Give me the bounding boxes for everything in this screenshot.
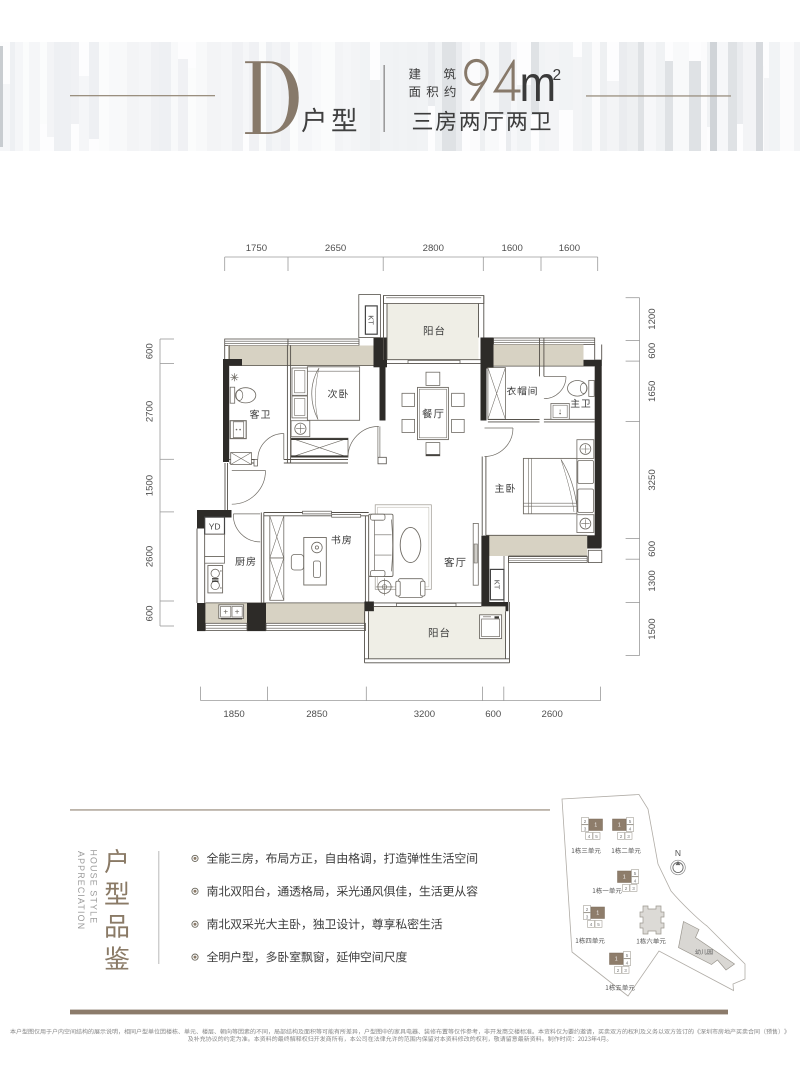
svg-text:600: 600 xyxy=(647,343,658,359)
svg-text:1: 1 xyxy=(615,957,618,963)
svg-text:1300: 1300 xyxy=(647,570,658,591)
svg-text:1: 1 xyxy=(594,823,597,829)
svg-text:2: 2 xyxy=(586,907,589,912)
svg-text:1850: 1850 xyxy=(223,709,244,720)
svg-text:YD: YD xyxy=(209,522,221,532)
svg-text:3250: 3250 xyxy=(647,469,658,490)
svg-text:2: 2 xyxy=(620,834,623,839)
svg-text:5: 5 xyxy=(634,871,637,876)
svg-text:4: 4 xyxy=(629,826,632,831)
svg-text:HOUSE STYLE: HOUSE STYLE xyxy=(89,850,99,925)
svg-text:600: 600 xyxy=(145,343,156,359)
svg-text:m: m xyxy=(520,55,557,111)
svg-text:3: 3 xyxy=(624,968,627,973)
svg-text:1: 1 xyxy=(623,875,626,881)
svg-text:4: 4 xyxy=(626,960,629,965)
svg-text:2: 2 xyxy=(625,886,628,891)
svg-text:2: 2 xyxy=(584,819,587,824)
svg-text:2650: 2650 xyxy=(325,243,346,254)
svg-text:2850: 2850 xyxy=(306,709,327,720)
svg-text:600: 600 xyxy=(485,709,501,720)
svg-text:5: 5 xyxy=(595,834,598,839)
svg-text:5: 5 xyxy=(626,953,629,958)
svg-text:3: 3 xyxy=(584,826,587,831)
svg-text:2800: 2800 xyxy=(423,243,444,254)
svg-text:1200: 1200 xyxy=(647,308,658,329)
svg-text:1650: 1650 xyxy=(647,381,658,402)
svg-text:5: 5 xyxy=(597,922,600,927)
svg-text:1750: 1750 xyxy=(246,243,267,254)
svg-text:2: 2 xyxy=(617,968,620,973)
svg-text:1: 1 xyxy=(596,911,599,917)
svg-text:2600: 2600 xyxy=(542,709,563,720)
svg-text:5: 5 xyxy=(629,819,632,824)
svg-text:2: 2 xyxy=(553,67,562,84)
svg-text:APPRECIATION: APPRECIATION xyxy=(76,851,86,930)
svg-text:600: 600 xyxy=(145,605,156,621)
svg-text:1600: 1600 xyxy=(502,243,523,254)
svg-text:4: 4 xyxy=(590,922,593,927)
svg-text:1600: 1600 xyxy=(559,243,580,254)
svg-text:3: 3 xyxy=(632,886,635,891)
svg-text:3: 3 xyxy=(627,834,630,839)
svg-text:2700: 2700 xyxy=(145,401,156,422)
svg-text:3: 3 xyxy=(586,914,589,919)
svg-text:4: 4 xyxy=(634,878,637,883)
svg-text:600: 600 xyxy=(647,541,658,557)
svg-text:1500: 1500 xyxy=(145,475,156,496)
svg-text:1500: 1500 xyxy=(647,618,658,639)
svg-text:N: N xyxy=(675,848,681,858)
svg-text:KT: KT xyxy=(493,580,502,590)
svg-text:KT: KT xyxy=(367,315,376,325)
svg-text:1: 1 xyxy=(618,823,621,829)
svg-text:3200: 3200 xyxy=(414,709,435,720)
svg-text:4: 4 xyxy=(588,834,591,839)
svg-text:2600: 2600 xyxy=(145,546,156,567)
